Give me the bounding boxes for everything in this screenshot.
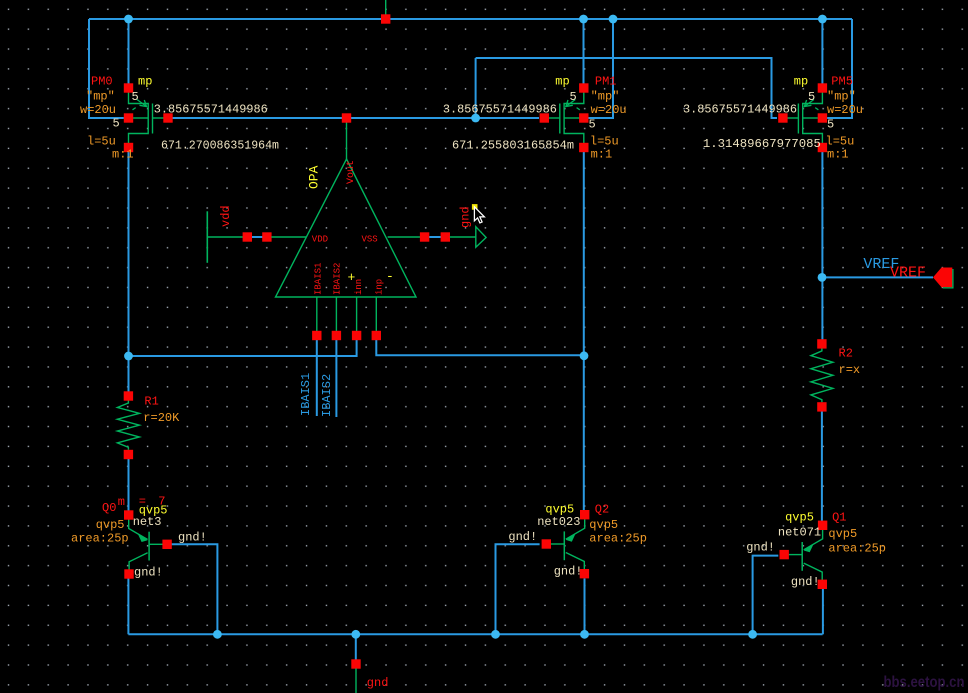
- svg-text:PM0: PM0: [91, 75, 113, 89]
- svg-text:5: 5: [589, 118, 596, 132]
- svg-text:w=20u: w=20u: [591, 103, 627, 117]
- svg-text:Vout: Vout: [346, 160, 357, 184]
- svg-text:5: 5: [808, 90, 815, 104]
- svg-text:m:1: m:1: [112, 148, 134, 162]
- svg-text:qvp5: qvp5: [828, 527, 857, 541]
- svg-text:vdd: vdd: [219, 205, 233, 227]
- svg-text:w=20u: w=20u: [80, 103, 116, 117]
- svg-text:5: 5: [132, 90, 139, 104]
- svg-text:qvp5: qvp5: [545, 503, 574, 517]
- svg-text:3.85675571449986: 3.85675571449986: [443, 103, 557, 117]
- svg-text:IBAIS2: IBAIS2: [333, 263, 343, 295]
- svg-text:"mp": "mp": [827, 90, 856, 104]
- svg-text:net023: net023: [537, 515, 580, 529]
- svg-text:gnd!: gnd!: [134, 566, 163, 580]
- svg-text:Q1: Q1: [832, 511, 846, 525]
- svg-text:Q2: Q2: [595, 503, 609, 517]
- svg-text:5: 5: [827, 118, 834, 132]
- svg-text:VDD: VDD: [312, 235, 328, 245]
- svg-text:gnd: gnd: [367, 676, 389, 690]
- svg-text:R1: R1: [144, 395, 158, 409]
- svg-text:IBAIS1: IBAIS1: [299, 373, 313, 416]
- svg-text:qvp5: qvp5: [139, 504, 168, 518]
- svg-text:qvp5: qvp5: [589, 518, 618, 532]
- svg-text:1.31489667977085: 1.31489667977085: [703, 137, 821, 151]
- svg-text:gnd!: gnd!: [554, 565, 583, 579]
- svg-text:PM5: PM5: [831, 75, 853, 89]
- svg-text:671.270086351964m: 671.270086351964m: [161, 139, 279, 153]
- svg-text:l=5u: l=5u: [590, 135, 619, 149]
- svg-text:gnd: gnd: [458, 206, 472, 228]
- svg-text:inn: inn: [354, 279, 364, 295]
- svg-text:m:1: m:1: [827, 148, 849, 162]
- svg-text:l=5u: l=5u: [826, 135, 855, 149]
- svg-text:gnd!: gnd!: [178, 531, 207, 545]
- svg-text:3.85675571449986: 3.85675571449986: [683, 103, 797, 117]
- svg-text:m: m: [118, 495, 125, 509]
- svg-text:PM1: PM1: [595, 75, 617, 89]
- svg-text:area:25p: area:25p: [589, 532, 647, 546]
- svg-text:mp: mp: [794, 75, 808, 89]
- svg-text:mp: mp: [138, 75, 152, 89]
- svg-text:r=x: r=x: [839, 363, 861, 377]
- svg-text:R2: R2: [839, 347, 853, 361]
- svg-text:bbs.eetop.cn: bbs.eetop.cn: [884, 674, 965, 691]
- svg-text:gnd!: gnd!: [508, 530, 537, 544]
- svg-text:OPA: OPA: [307, 165, 322, 189]
- svg-text:area:25p: area:25p: [71, 532, 129, 546]
- svg-text:"mp": "mp": [86, 90, 115, 104]
- svg-text:net071: net071: [778, 526, 821, 540]
- svg-text:gnd!: gnd!: [746, 541, 775, 555]
- svg-text:area:25p: area:25p: [828, 542, 886, 556]
- svg-text:5: 5: [570, 90, 577, 104]
- svg-text:qvp5: qvp5: [96, 518, 125, 532]
- svg-text:IBAIS2: IBAIS2: [320, 374, 334, 417]
- svg-text:IBAIS1: IBAIS1: [313, 263, 323, 295]
- svg-text:mp: mp: [555, 75, 569, 89]
- svg-text:-: -: [386, 269, 394, 284]
- svg-text:l=5u: l=5u: [87, 135, 116, 149]
- svg-text:+: +: [348, 270, 356, 285]
- svg-text:VSS: VSS: [362, 235, 378, 245]
- svg-text:r=20K: r=20K: [143, 411, 180, 425]
- svg-text:5: 5: [113, 117, 120, 131]
- svg-text:qvp5: qvp5: [785, 511, 814, 525]
- svg-text:inp: inp: [375, 279, 385, 295]
- svg-text:3.85675571449986: 3.85675571449986: [154, 103, 268, 117]
- svg-text:gnd!: gnd!: [791, 575, 820, 589]
- svg-text:w=20u: w=20u: [827, 103, 863, 117]
- svg-text:Q0: Q0: [102, 501, 116, 515]
- svg-text:m:1: m:1: [591, 148, 613, 162]
- svg-text:671.255803165854m: 671.255803165854m: [452, 139, 574, 153]
- svg-text:"mp": "mp": [591, 90, 620, 104]
- svg-text:VREF: VREF: [863, 256, 899, 273]
